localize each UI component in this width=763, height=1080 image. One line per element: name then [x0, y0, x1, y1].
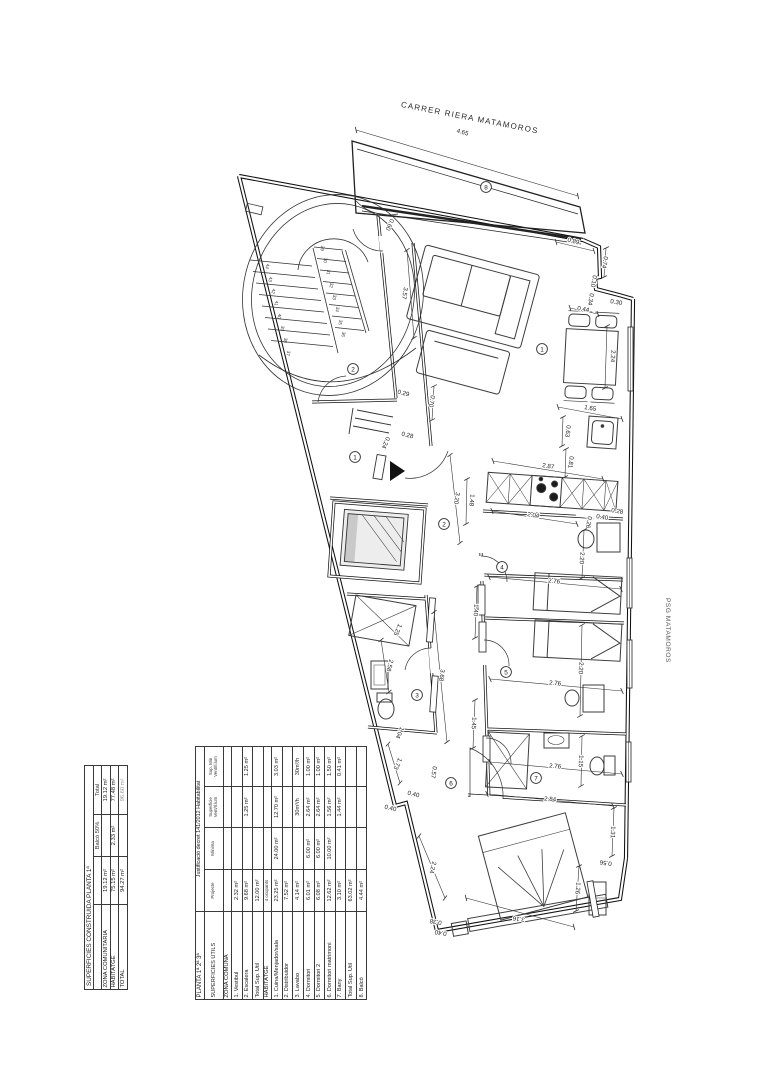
dimension-label: 1.48	[467, 494, 475, 507]
hob	[530, 475, 562, 507]
dimension-label: 4.65	[456, 128, 470, 138]
table-cell: HABITATGE	[110, 905, 118, 990]
table-cell: SUPERFICIES UTILS	[204, 912, 223, 1000]
table-cell: Justificació decret 141/2012 Habitabilit…	[196, 747, 205, 912]
stair-step-number: 30	[322, 257, 328, 263]
table-cell	[94, 905, 102, 990]
dimension-label: 1.45	[470, 717, 478, 730]
table-cell: ZONA COMUNITARIA	[102, 905, 110, 990]
stair-step-number: 38	[282, 337, 288, 343]
table-cell: 1.56 m²	[325, 787, 336, 828]
dimension-label: 0.40	[596, 513, 610, 522]
room-marker-number: 2	[442, 521, 446, 528]
dimension-tick	[398, 781, 402, 786]
table-cell	[293, 828, 304, 870]
stair-step-number: 29	[319, 245, 325, 251]
table-cell: 75.15 m²	[110, 857, 118, 905]
dimension-line	[356, 130, 578, 196]
table-cell: 2.33 m²	[110, 815, 118, 857]
dimension-label: 2.87	[542, 462, 556, 471]
table-cell: 3.10 m²	[335, 870, 346, 912]
table-cell: Total Sup. Util	[346, 912, 357, 1000]
dimension-label: 0.30	[610, 298, 624, 307]
dimension-label: 2.24	[427, 861, 437, 875]
bany-wc-tank	[604, 756, 615, 775]
chair-5	[565, 690, 579, 706]
dimension-label: 0.38	[429, 917, 443, 926]
table-cell	[346, 787, 357, 828]
table-cell	[346, 747, 357, 787]
bany-shower	[486, 732, 530, 789]
table-cell	[263, 747, 271, 787]
dimension-label: 3.20	[452, 492, 461, 506]
dimension-label: 3.68	[437, 669, 445, 682]
dimension-label: 0.34	[586, 293, 595, 307]
stair-step-number: 35	[337, 319, 343, 325]
table-cell: Superficie Vent/Il.lum	[204, 787, 223, 828]
dimension-label: 1.25	[392, 623, 403, 637]
room-marker-number: 1	[540, 346, 544, 353]
floor-plan-sheet: 4.650.890.740.100.340.440.302.241.650.63…	[0, 0, 763, 1080]
table-cell	[242, 828, 253, 870]
room-marker-number: 1	[353, 454, 357, 461]
table-cell	[263, 828, 271, 870]
table-cell: 1.25 m²	[242, 747, 253, 787]
table-cell: 7. Bany	[335, 912, 346, 1000]
dimension-line	[605, 326, 607, 388]
table-cell	[263, 787, 271, 828]
dimension-label: 2.76	[549, 762, 562, 770]
table-cell: PLANTA 1ª 2ª 3ª	[196, 912, 205, 1000]
entry-arrow-icon	[390, 461, 405, 481]
table-cell: Projecte	[204, 870, 223, 912]
table-cell	[335, 828, 346, 870]
table-cell: 23.25 m²	[272, 870, 283, 912]
table-cell: Total	[94, 765, 102, 814]
table-cell: 6.08 m²	[314, 870, 325, 912]
table-cell	[282, 828, 293, 870]
table-cell: 94.27 m²	[119, 857, 127, 905]
street-label-right: PSG MATAMOROS	[664, 598, 671, 663]
table-cell: 30m³/h	[293, 787, 304, 828]
table-cell: 19.12 m²	[102, 765, 110, 814]
dimension-label: 2.20	[577, 662, 585, 675]
dimension-label: 0.70	[427, 395, 436, 409]
table-cell: Balcó 50%	[94, 815, 102, 857]
table-cell	[253, 747, 264, 787]
surfaces-util-table: PLANTA 1ª 2ª 3ªJustificació decret 141/2…	[195, 747, 362, 1000]
dimension-label: 1.65	[584, 404, 598, 413]
table-cell	[231, 787, 242, 828]
vestibule	[340, 408, 448, 570]
stair-step-number: 34	[334, 306, 340, 312]
table-cell: 2. Distribuidor	[282, 912, 293, 1000]
table-cell	[356, 787, 367, 828]
dimension-label: 2.04	[527, 511, 541, 520]
table-cell	[231, 747, 242, 787]
dimension-label: 2.84	[544, 795, 557, 803]
dimension-label: 0.81	[566, 456, 574, 469]
dimension-label: 0.40	[384, 804, 398, 814]
table-cell: 4 ocupants	[263, 870, 271, 912]
dimension-label: 0.63	[563, 425, 571, 438]
table-cell: 4. Dormitori	[303, 912, 314, 1000]
table-cell: Sup. Min Vent/Il.lum	[204, 747, 223, 787]
dimension-label: 0.28	[401, 431, 415, 441]
stair-step-number: 39	[279, 325, 285, 331]
table-cell: 1.25 m²	[242, 787, 253, 828]
dimension-line	[562, 417, 563, 446]
chair-4	[578, 530, 594, 548]
dimension-label: 1.40	[472, 604, 480, 617]
table-cell: 96.60 m²	[119, 765, 127, 814]
dimension-label: 0.29	[397, 389, 411, 399]
stair-step-number: 41	[273, 300, 279, 306]
dimension-label: 0.10	[589, 275, 598, 289]
dimension-label: 2.76	[549, 679, 562, 687]
table-cell: 19.12 m²	[102, 857, 110, 905]
table-cell	[356, 747, 367, 787]
table-cell: 30m³/h	[293, 747, 304, 787]
stair-step-number: 36	[340, 331, 346, 337]
sofa-2	[416, 330, 510, 395]
table-cell	[223, 828, 231, 870]
dimension-label: 2.20	[578, 552, 586, 565]
table-cell: 6.01 m²	[303, 870, 314, 912]
dimension-line	[466, 479, 467, 524]
table-cell	[119, 815, 127, 857]
room-marker-number: 6	[449, 780, 453, 787]
table-cell: 10.00 m²	[325, 828, 336, 870]
dimension-label: 2.76	[548, 577, 561, 585]
dimension-label: 0.57	[429, 766, 438, 780]
table-cell: 1. Vestibul	[231, 912, 242, 1000]
table-cell: 6. Dormitori matrimoni	[325, 912, 336, 1000]
stair-step-number: 32	[328, 282, 334, 288]
table-cell: SUPERFICIES CONSTRUIDA PLANTA 1ª	[85, 765, 94, 989]
table-cell: 3. Lavabo	[293, 912, 304, 1000]
table-cell: ZONA COMUNA	[223, 912, 231, 1000]
dimension-label: 3.57	[400, 287, 409, 301]
table-cell: 1.50 m²	[325, 747, 336, 787]
table-cell: 9.68 m²	[242, 870, 253, 912]
dimension-label: 0.28	[611, 507, 625, 516]
room-marker-number: 4	[500, 564, 504, 571]
room-marker-number: 3	[415, 692, 419, 699]
stair-step-number: 37	[285, 350, 291, 356]
table-cell: 4.14 m²	[293, 870, 304, 912]
table-cell	[253, 828, 264, 870]
table-cell: 2. Escalera	[242, 912, 253, 1000]
table-cell	[94, 857, 102, 905]
table-cell: TOTAL	[119, 905, 127, 990]
table-cell: HABITATGE	[263, 912, 271, 1000]
stair-step-number: 33	[331, 294, 337, 300]
table-cell	[356, 828, 367, 870]
stair-step-number: 44	[264, 263, 270, 269]
table-cell: 12.00 m²	[253, 870, 264, 912]
dimension-label: 1.31	[609, 826, 617, 839]
table-cell	[223, 870, 231, 912]
table-cell: Mínima	[204, 828, 223, 870]
dimension-label: 0.40	[407, 790, 421, 800]
table-cell: 2.64 m²	[303, 787, 314, 828]
dimension-label: 1.73	[392, 757, 403, 771]
dimension-label: 1.15	[577, 755, 585, 768]
master-bed	[478, 813, 587, 920]
table-cell	[346, 828, 357, 870]
elevator	[340, 509, 408, 570]
bed-5	[533, 620, 622, 662]
dimension-tick	[443, 895, 447, 900]
table-cell: 1. Cuina/Menjador/sala	[272, 912, 283, 1000]
table-cell: 1.44 m²	[335, 787, 346, 828]
table-cell: 12.70 m²	[272, 787, 283, 828]
dimension-tick	[417, 833, 421, 838]
table-cell: 1.00 m²	[314, 747, 325, 787]
room-marker-number: 8	[484, 184, 488, 191]
dimension-label: 0.44	[577, 305, 591, 314]
desk-4	[597, 523, 620, 552]
room-marker-number: 2	[351, 366, 355, 373]
table-cell: 2.32 m²	[231, 870, 242, 912]
table-cell: 6.00 m²	[314, 828, 325, 870]
dimension-label: 2.24	[609, 350, 617, 363]
table-cell: 8. Balcó	[356, 912, 367, 1000]
table-cell: 12.62 m²	[325, 870, 336, 912]
table-cell	[231, 828, 242, 870]
stair-step-numbers: 44434241403938372930313233343536	[264, 245, 346, 356]
table-cell: 0.41 m²	[335, 747, 346, 787]
table-cell	[253, 787, 264, 828]
table-cell: 7.52 m²	[282, 870, 293, 912]
table-cell: 2.64 m²	[314, 787, 325, 828]
table-cell: 6.00 m²	[303, 828, 314, 870]
table-cell: Total Sup. Util	[253, 912, 264, 1000]
kitchen-sink	[587, 416, 618, 449]
table-cell	[102, 815, 110, 857]
stair-step-number: 43	[267, 276, 273, 282]
dimension-label: 0.24	[380, 436, 391, 450]
surfaces-built-table: SUPERFICIES CONSTRUIDA PLANTA 1ªBalcó 50…	[84, 766, 142, 990]
table-cell	[223, 747, 231, 787]
table-cell: 5. Dormitori 2	[314, 912, 325, 1000]
room-marker-number: 5	[504, 669, 508, 676]
table-cell	[282, 787, 293, 828]
dimension-label: 1.26	[573, 882, 581, 895]
table-cell: 24.00 m²	[272, 828, 283, 870]
table-cell: 3.03 m²	[272, 747, 283, 787]
table-cell	[223, 787, 231, 828]
table-cell: 4.44 m²	[356, 870, 367, 912]
table-cell	[282, 747, 293, 787]
table-cell: 77.48 m²	[110, 765, 118, 814]
table-cell: 63.02 m²	[346, 870, 357, 912]
dimension-label: 0.56	[599, 858, 612, 867]
table-cell: 1.00 m²	[303, 747, 314, 787]
dimension-tick	[386, 742, 390, 747]
room-marker-number: 7	[534, 775, 538, 782]
stair-step-number: 42	[270, 288, 276, 294]
